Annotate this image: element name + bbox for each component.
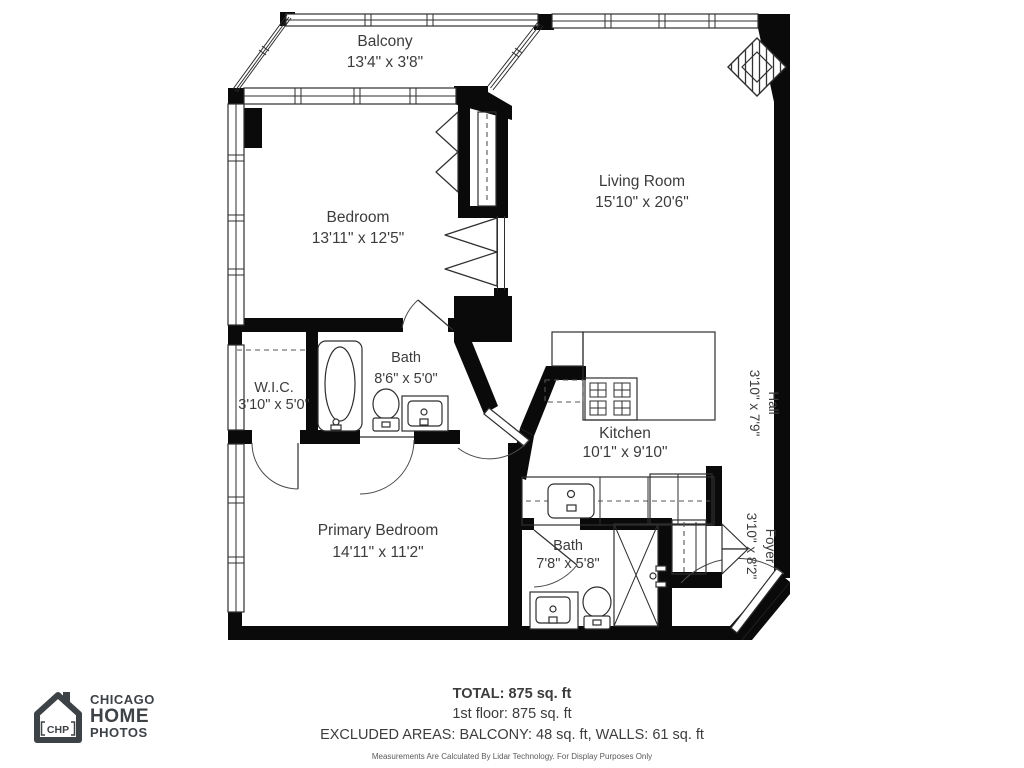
window-bedroom-left — [228, 104, 244, 325]
fridge-icon — [650, 474, 712, 524]
window-bedroom-top — [244, 88, 456, 104]
room-label-kitchen: Kitchen — [599, 425, 651, 442]
kitchen-counter — [583, 332, 715, 420]
summary-disclaimer: Measurements Are Calculated By Lidar Tec… — [372, 752, 652, 761]
house-icon: CHP — [37, 692, 79, 740]
room-dims-wic: 3'10" x 5'0" — [238, 397, 309, 413]
room-label-bath: Bath — [391, 350, 421, 366]
bifold-door-icon — [436, 112, 458, 152]
bifold-door-icon — [445, 252, 497, 286]
bathtub-icon — [318, 341, 362, 431]
bedroom-door — [402, 300, 453, 330]
room-label-bedroom: Bedroom — [327, 209, 390, 226]
bifold-door-icon — [436, 152, 458, 192]
room-label-balcony: Balcony — [357, 33, 412, 50]
room-dims-bath: 8'6" x 5'0" — [374, 371, 437, 387]
toilet-icon — [373, 389, 399, 431]
room-label-foyer: Foyer — [763, 529, 778, 564]
bath2-fixtures — [530, 520, 706, 629]
logo-line3: PHOTOS — [90, 725, 148, 740]
stove-icon — [585, 378, 637, 420]
window-wic-left — [228, 345, 244, 430]
summary-total: TOTAL: 875 sq. ft — [453, 686, 572, 702]
kitchen-cabinet — [552, 332, 583, 366]
wic-door — [252, 443, 298, 489]
kitchen-sink-icon — [548, 484, 594, 518]
shower-icon — [614, 524, 666, 626]
foyer-closet — [672, 520, 706, 574]
bedroom-closet — [436, 112, 505, 290]
window-primary-left — [228, 444, 244, 612]
room-label-living-room: Living Room — [599, 173, 685, 190]
room-dims-foyer: 3'10" x 8'2" — [744, 513, 759, 580]
room-dims-bath2: 7'8" x 5'8" — [536, 556, 599, 572]
brand-logo: CHP CHICAGO HOME PHOTOS — [37, 692, 155, 740]
room-dims-bedroom: 13'11" x 12'5" — [312, 230, 404, 247]
room-label-bath2: Bath — [553, 538, 583, 554]
lower-counter — [522, 474, 714, 525]
room-label-hall: Hall — [766, 391, 781, 414]
room-dims-living-room: 15'10" x 20'6" — [595, 194, 689, 211]
logo-line2: HOME — [90, 706, 149, 727]
primary-bedroom-door — [360, 437, 414, 494]
summary-floor: 1st floor: 875 sq. ft — [452, 706, 571, 722]
sink-vanity-icon — [402, 396, 448, 431]
room-dims-kitchen: 10'1" x 9'10" — [582, 444, 667, 461]
sink-vanity-icon — [530, 592, 578, 629]
summary-excluded: EXCLUDED AREAS: BALCONY: 48 sq. ft, WALL… — [320, 727, 704, 743]
room-label-primary-bedroom: Primary Bedroom — [318, 522, 439, 539]
balcony-railing — [233, 14, 543, 92]
bifold-door-icon — [445, 218, 497, 252]
room-dims-primary-bedroom: 14'11" x 11'2" — [332, 544, 423, 561]
room-dims-hall: 3'10" x 7'9" — [747, 370, 762, 437]
logo-line1: CHICAGO — [90, 692, 155, 707]
room-dims-balcony: 13'4" x 3'8" — [347, 54, 423, 71]
summary-block: TOTAL: 875 sq. ft 1st floor: 875 sq. ft … — [320, 686, 704, 761]
floor-plan-drawing: Balcony 13'4" x 3'8" Bedroom 13'11" x 12… — [0, 0, 1024, 768]
room-label-wic: W.I.C. — [254, 380, 293, 396]
logo-monogram: CHP — [47, 724, 69, 736]
floor-plan-page: Balcony 13'4" x 3'8" Bedroom 13'11" x 12… — [0, 0, 1024, 768]
window-living-top — [552, 14, 758, 28]
toilet-icon — [583, 587, 611, 629]
